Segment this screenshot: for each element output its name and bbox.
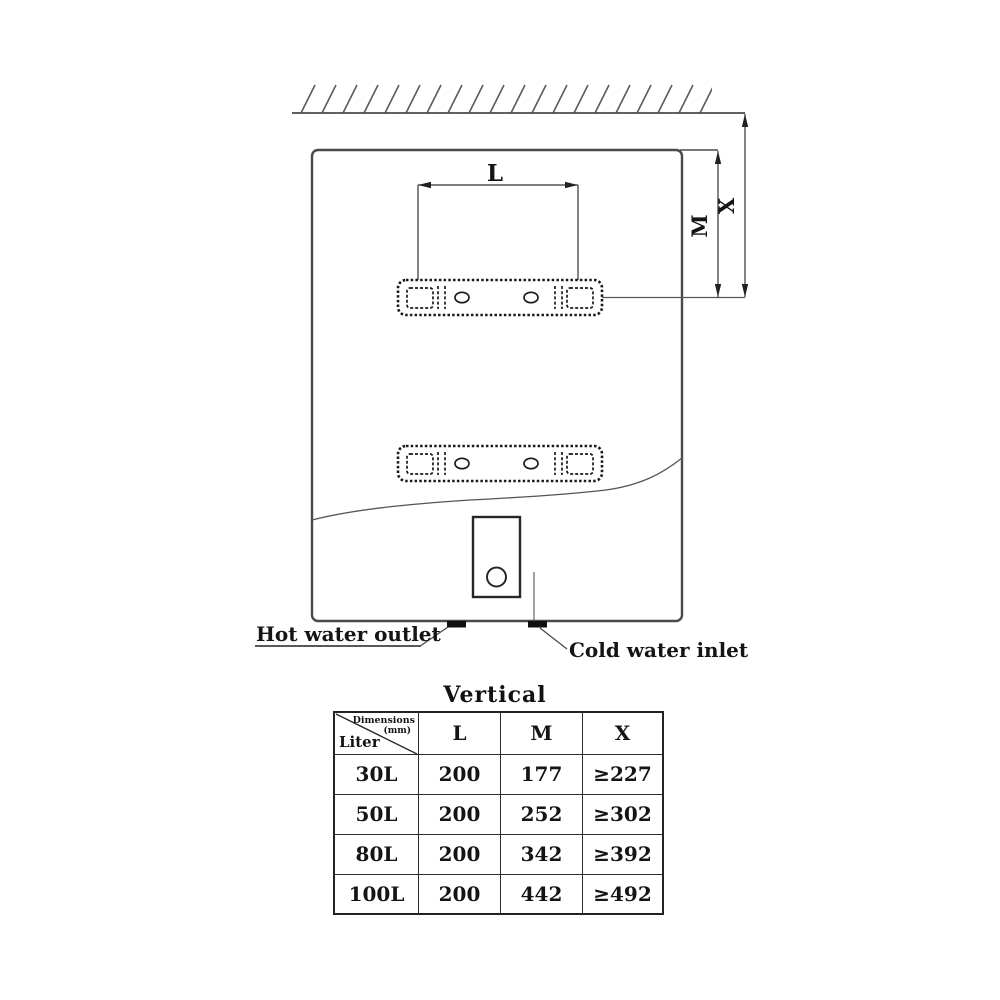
table-header-row: Dimensions (mm) Liter L M X [334,712,663,754]
column-header-x: X [583,712,664,754]
cell-x: ≥227 [583,754,664,794]
table-row: 80L 200 342 ≥392 [334,834,663,874]
table-title: Vertical [333,682,657,708]
arrow-up-icon [742,114,748,127]
cell-m: 342 [501,834,583,874]
hot-water-outlet-nipple [447,621,466,628]
table-row: 50L 200 252 ≥302 [334,794,663,834]
cell-x: ≥302 [583,794,664,834]
cell-x: ≥492 [583,874,664,914]
corner-label-dimensions: Dimensions [353,715,415,726]
dimension-m-label: M [687,214,712,237]
cell-l: 200 [419,754,501,794]
corner-label-unit: (mm) [383,726,411,736]
cell-liter: 30L [334,754,419,794]
arrow-up-icon [715,151,721,164]
cell-l: 200 [419,834,501,874]
column-header-m: M [501,712,583,754]
corner-label-liter: Liter [339,733,380,751]
cell-l: 200 [419,874,501,914]
cell-liter: 50L [334,794,419,834]
cell-l: 200 [419,794,501,834]
hot-water-outlet-label: Hot water outlet [256,622,442,646]
control-panel [473,517,520,597]
cell-liter: 100L [334,874,419,914]
cell-m: 177 [501,754,583,794]
arrow-down-icon [715,284,721,297]
cell-liter: 80L [334,834,419,874]
hot-water-outlet-callout: Hot water outlet [255,622,448,646]
dimension-x-label: X [714,197,739,214]
dimension-x: X [714,114,748,297]
cold-water-inlet-callout: Cold water inlet [540,628,749,662]
mounting-bracket-upper [398,280,602,315]
dimension-m: M [687,151,721,297]
table-row: 100L 200 442 ≥492 [334,874,663,914]
cell-m: 252 [501,794,583,834]
page: M X L [0,0,1000,1000]
table-row: 30L 200 177 ≥227 [334,754,663,794]
ceiling-hatch [298,84,712,113]
table-corner-cell: Dimensions (mm) Liter [334,712,419,754]
ceiling [292,84,745,113]
leader-line [540,628,567,649]
cell-m: 442 [501,874,583,914]
column-header-l: L [419,712,501,754]
dimension-l-label: L [487,160,503,187]
arrow-down-icon [742,284,748,297]
dimensions-table: Dimensions (mm) Liter L M X 30L 200 177 … [333,711,664,915]
cold-water-inlet-label: Cold water inlet [569,638,749,662]
cold-water-inlet-nipple [528,621,547,628]
control-knob-icon [487,568,506,587]
mounting-bracket-lower [398,446,602,481]
cell-x: ≥392 [583,834,664,874]
